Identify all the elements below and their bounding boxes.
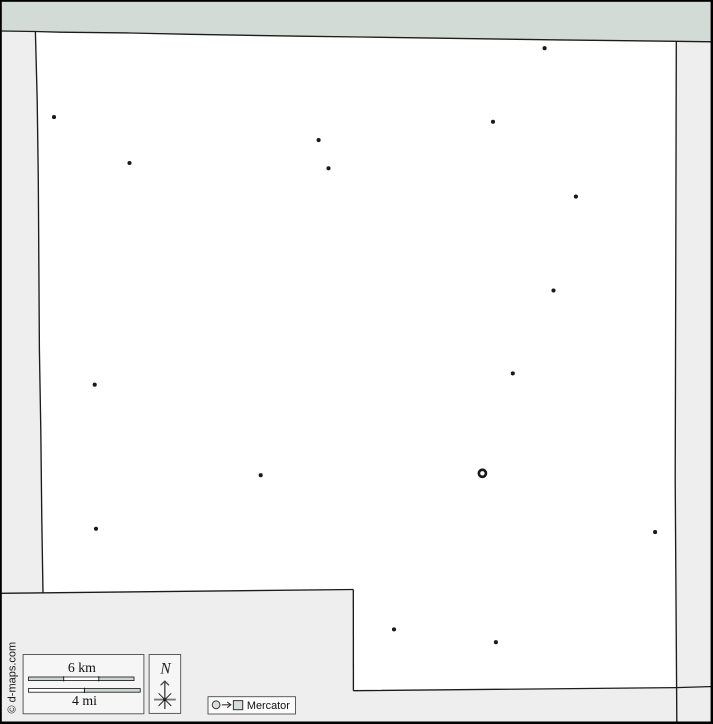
svg-text:6 km: 6 km — [68, 660, 96, 675]
svg-text:N: N — [159, 660, 172, 677]
svg-text:4 mi: 4 mi — [72, 693, 97, 708]
svg-text:© d-maps.com: © d-maps.com — [7, 642, 19, 714]
svg-text:Mercator: Mercator — [247, 700, 290, 712]
